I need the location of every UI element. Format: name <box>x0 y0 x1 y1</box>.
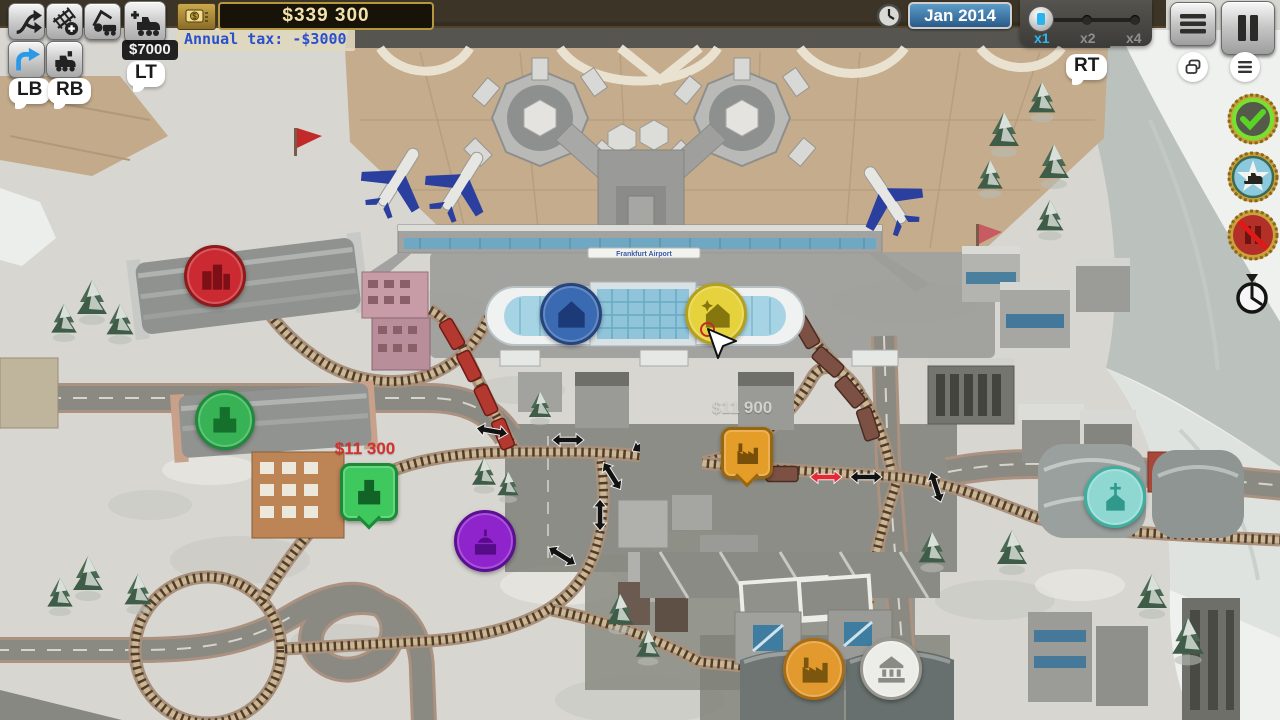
city-icon <box>197 258 234 295</box>
speed-x2[interactable]: x2 <box>1080 30 1096 46</box>
speed-x1[interactable]: x1 <box>1034 30 1050 46</box>
station-marker-station-pin-green[interactable] <box>340 463 398 521</box>
train-plus-icon <box>128 5 162 39</box>
station-marker-city-red[interactable] <box>184 245 246 307</box>
hint-rb: RB <box>48 78 91 104</box>
svg-text:$: $ <box>192 12 197 21</box>
hamburger-icon <box>1179 12 1207 36</box>
price-label: $11 900 <box>712 398 773 418</box>
build-track-button[interactable] <box>46 3 83 40</box>
pause-icon <box>1235 14 1261 42</box>
clock-icon <box>876 3 902 29</box>
locomotive-icon <box>50 45 80 75</box>
money-icon: $ <box>177 3 216 30</box>
crossed-pause-medal-icon <box>1226 208 1280 262</box>
house-icon <box>553 296 590 333</box>
station-marker-house-blue[interactable] <box>540 283 602 345</box>
capitol-icon <box>467 523 504 560</box>
price-label: $11 300 <box>335 439 396 459</box>
mouse-cursor <box>707 328 737 367</box>
annual-tax-label: Annual tax: -$3000 <box>176 28 355 51</box>
game-screen: { "hud": { "money": { "balance": "$339 3… <box>0 0 1280 720</box>
pause-button[interactable] <box>1221 1 1275 55</box>
options-button[interactable] <box>1230 52 1260 82</box>
hint-lb: LB <box>9 78 50 104</box>
windows-button[interactable] <box>1178 52 1208 82</box>
buy-train-price: $7000 <box>122 40 178 60</box>
copy-icon <box>1185 59 1201 75</box>
crane-wrecking-ball-icon <box>88 7 118 37</box>
trains-list-button[interactable] <box>46 41 83 78</box>
junction-button[interactable] <box>8 3 45 40</box>
junction-arrows-icon <box>12 7 42 37</box>
badge-objective-complete[interactable] <box>1226 92 1280 151</box>
station-marker-museum-white[interactable] <box>860 638 922 700</box>
blue-turn-arrow-icon <box>12 45 42 75</box>
museum-icon <box>873 651 910 688</box>
green-check-medal-icon <box>1226 92 1280 146</box>
badge-no-pause[interactable] <box>1226 208 1280 267</box>
game-map[interactable]: .bed{fill:none;stroke:#a8907a;stroke-wid… <box>0 0 1280 720</box>
station-marker-factory-pin-orange[interactable] <box>721 427 773 479</box>
hint-lt: LT <box>127 61 165 87</box>
date-display[interactable]: Jan 2014 <box>908 2 1012 29</box>
timer-button[interactable] <box>1232 272 1272 321</box>
speed-stop-x2 <box>1082 15 1092 25</box>
factory-icon <box>732 438 762 468</box>
speed-stop-x4 <box>1130 15 1140 25</box>
menu-button[interactable] <box>1170 2 1216 46</box>
badge-train-star[interactable] <box>1226 150 1280 209</box>
clock-arrow-icon <box>1232 272 1272 316</box>
airport-sign: Frankfurt Airport <box>616 251 672 258</box>
hint-rt: RT <box>1066 54 1107 80</box>
station-marker-factory-orange[interactable] <box>783 638 845 700</box>
star-train-medal-icon <box>1226 150 1280 204</box>
track-plus-icon <box>50 7 80 37</box>
church-icon <box>1097 479 1134 516</box>
speed-knob[interactable] <box>1028 6 1054 32</box>
buy-train-button[interactable] <box>124 1 166 43</box>
demolish-button[interactable] <box>84 3 121 40</box>
station-icon <box>352 475 386 509</box>
speed-x4[interactable]: x4 <box>1126 30 1142 46</box>
station-icon <box>207 402 243 438</box>
station-marker-capitol-purple[interactable] <box>454 510 516 572</box>
station-marker-church-teal[interactable] <box>1084 466 1146 528</box>
factory-icon <box>796 651 833 688</box>
money-balance: $339 300 <box>218 2 434 30</box>
route-signal-button[interactable] <box>8 41 45 78</box>
speed-panel: x1 x2 x4 <box>1020 0 1152 46</box>
station-marker-station-green[interactable] <box>195 390 255 450</box>
hamburger-icon <box>1238 61 1252 73</box>
